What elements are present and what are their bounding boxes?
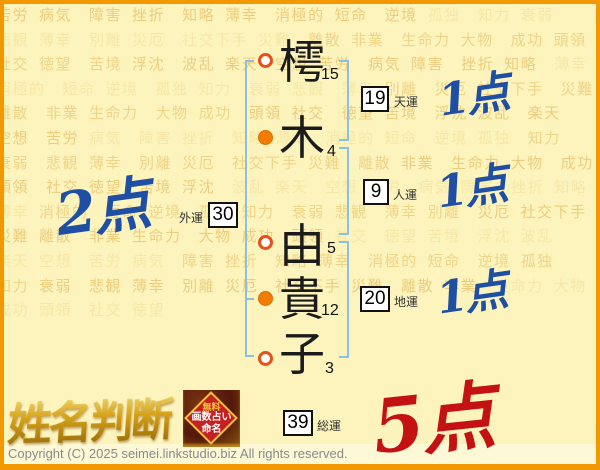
jinun-score: 1点	[432, 148, 509, 221]
badge-line-free: 無料	[202, 402, 220, 412]
gaiun-score: 2点	[50, 156, 153, 252]
tenun-label: 天運	[394, 93, 418, 110]
badge-line-meimei: 命名	[202, 424, 222, 436]
yinyang-mark-4	[258, 291, 273, 306]
tenun-value-box: 19	[361, 86, 389, 112]
jinun-bracket-tick-bottom	[339, 233, 348, 235]
yinyang-mark-3	[258, 235, 273, 250]
stroke-count-4: 12	[321, 302, 339, 320]
chiun-bracket-tick-bottom	[339, 356, 348, 358]
jinun-value-box: 9	[363, 179, 389, 205]
chiun-score: 1点	[432, 254, 509, 327]
stroke-count-3: 5	[327, 240, 336, 258]
name-char-2: 木	[272, 114, 332, 164]
badge-line-kakusu: 画数占い	[192, 412, 232, 424]
stroke-count-5: 3	[325, 360, 334, 378]
soun-label: 総運	[317, 417, 341, 434]
tenun-bracket-tick-top	[339, 60, 348, 62]
jinun-bracket-tick-top	[339, 147, 348, 149]
jinun-bracket-line	[347, 147, 349, 235]
yinyang-mark-5	[258, 351, 273, 366]
chiun-label: 地運	[394, 293, 418, 310]
yinyang-mark-2	[258, 130, 273, 145]
jinun-label: 人運	[393, 186, 417, 203]
chiun-value-box: 20	[360, 286, 390, 312]
chiun-bracket-tick-top	[339, 241, 348, 243]
gaiun-value-box: 30	[208, 202, 238, 228]
seimei-handan-page: 苦労病気障害挫折知略薄幸消極的短命逆境孤独知力衰弱悲観薄幸別離災厄社交下手災難離…	[0, 0, 600, 470]
soun-value-box: 39	[283, 410, 313, 436]
name-char-5: 子	[272, 330, 332, 380]
gaiun-label: 外運	[179, 209, 203, 226]
gaiun-bracket-tick-mid	[245, 298, 254, 300]
soun-score: 5点	[367, 356, 497, 470]
gaiun-bracket-line	[245, 60, 247, 357]
gaiun-bracket-tick-top	[245, 60, 254, 62]
tenun-bracket-tick-bottom	[339, 139, 348, 141]
badge-text: 無料 画数占い 命名	[183, 390, 240, 447]
site-logo[interactable]: 姓名判断	[6, 383, 174, 453]
tenun-bracket-line	[347, 60, 349, 141]
chiun-bracket-line	[347, 241, 349, 358]
gaiun-bracket-tick-bottom	[245, 355, 254, 357]
stroke-count-1: 15	[321, 66, 339, 84]
naming-promo-badge[interactable]: 無料 画数占い 命名	[183, 390, 240, 447]
stroke-count-2: 4	[327, 143, 336, 161]
name-char-3: 由	[272, 222, 332, 272]
yinyang-mark-1	[258, 53, 273, 68]
tenun-score: 1点	[434, 56, 511, 129]
